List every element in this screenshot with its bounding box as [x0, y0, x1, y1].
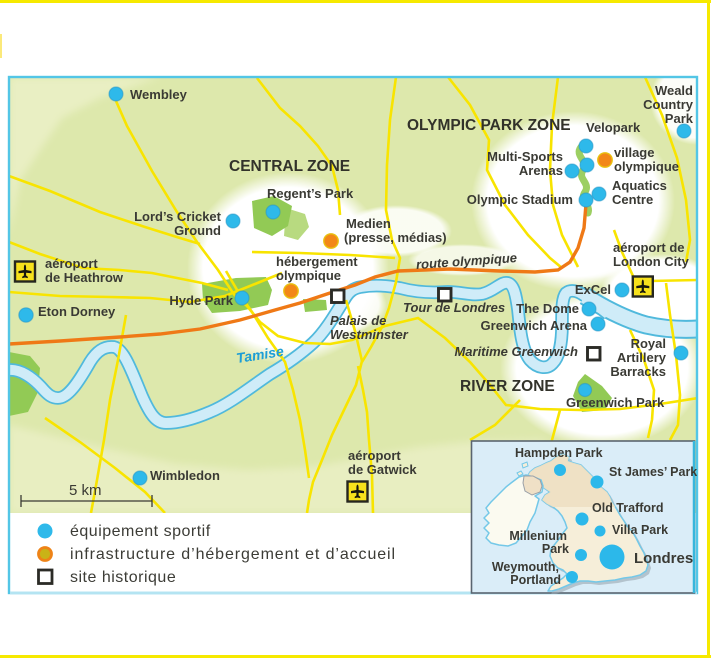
- svg-text:Medien: Medien: [346, 216, 391, 231]
- svg-text:St James’ Park: St James’ Park: [609, 465, 697, 479]
- svg-text:Park: Park: [665, 111, 694, 126]
- svg-text:Royal: Royal: [631, 336, 666, 351]
- svg-text:Olympic Stadium: Olympic Stadium: [467, 192, 573, 207]
- svg-text:olympique: olympique: [614, 159, 679, 174]
- svg-text:Lord’s Cricket: Lord’s Cricket: [134, 209, 222, 224]
- svg-text:site historique: site historique: [70, 569, 176, 586]
- svg-text:Millenium: Millenium: [509, 529, 567, 543]
- svg-text:Country: Country: [643, 97, 694, 112]
- svg-text:CENTRAL ZONE: CENTRAL ZONE: [229, 158, 350, 175]
- svg-text:OLYMPIC PARK ZONE: OLYMPIC PARK ZONE: [407, 117, 571, 134]
- svg-text:Park: Park: [542, 542, 569, 556]
- svg-text:ExCel: ExCel: [575, 282, 611, 297]
- svg-text:aéroport de: aéroport de: [613, 240, 685, 255]
- svg-text:équipement sportif: équipement sportif: [70, 523, 211, 540]
- svg-text:Barracks: Barracks: [610, 364, 666, 379]
- svg-text:Centre: Centre: [612, 192, 653, 207]
- svg-text:Velopark: Velopark: [586, 120, 641, 135]
- svg-text:5 km: 5 km: [69, 482, 102, 499]
- svg-text:Maritime Greenwich: Maritime Greenwich: [454, 344, 578, 359]
- svg-text:Eton Dorney: Eton Dorney: [38, 304, 116, 319]
- svg-text:London City: London City: [613, 254, 690, 269]
- svg-text:aéroport: aéroport: [45, 256, 98, 271]
- svg-text:Arenas: Arenas: [519, 163, 563, 178]
- svg-text:Artillery: Artillery: [617, 350, 667, 365]
- svg-text:Wembley: Wembley: [130, 87, 188, 102]
- svg-text:village: village: [614, 145, 654, 160]
- svg-text:The Dome: The Dome: [516, 301, 579, 316]
- svg-text:Weymouth,: Weymouth,: [492, 560, 559, 574]
- svg-text:Weald: Weald: [655, 83, 693, 98]
- svg-text:infrastructure d’hébergement e: infrastructure d’hébergement et d’accuei…: [70, 546, 396, 563]
- svg-text:Regent’s Park: Regent’s Park: [267, 186, 354, 201]
- svg-text:Hyde Park: Hyde Park: [169, 293, 233, 308]
- svg-text:Aquatics: Aquatics: [612, 178, 667, 193]
- svg-text:Multi-Sports: Multi-Sports: [487, 149, 563, 164]
- svg-text:Ground: Ground: [174, 223, 221, 238]
- svg-text:Greenwich Park: Greenwich Park: [566, 395, 665, 410]
- svg-text:Westminster: Westminster: [330, 327, 409, 342]
- svg-text:Wimbledon: Wimbledon: [150, 468, 220, 483]
- svg-text:Tour de Londres: Tour de Londres: [403, 300, 505, 315]
- svg-text:hébergement: hébergement: [276, 254, 358, 269]
- svg-text:olympique: olympique: [276, 268, 341, 283]
- svg-text:de Heathrow: de Heathrow: [45, 270, 124, 285]
- svg-text:Greenwich Arena: Greenwich Arena: [481, 318, 588, 333]
- svg-text:Portland: Portland: [510, 573, 561, 587]
- svg-text:de Gatwick: de Gatwick: [348, 462, 417, 477]
- svg-text:Old Trafford: Old Trafford: [592, 501, 664, 515]
- svg-text:Hampden Park: Hampden Park: [515, 446, 603, 460]
- svg-text:RIVER ZONE: RIVER ZONE: [460, 378, 555, 395]
- svg-text:aéroport: aéroport: [348, 448, 401, 463]
- svg-text:(presse, médias): (presse, médias): [344, 230, 447, 245]
- svg-text:Villa Park: Villa Park: [612, 523, 668, 537]
- svg-text:Londres: Londres: [634, 550, 693, 567]
- svg-text:Palais de: Palais de: [330, 313, 386, 328]
